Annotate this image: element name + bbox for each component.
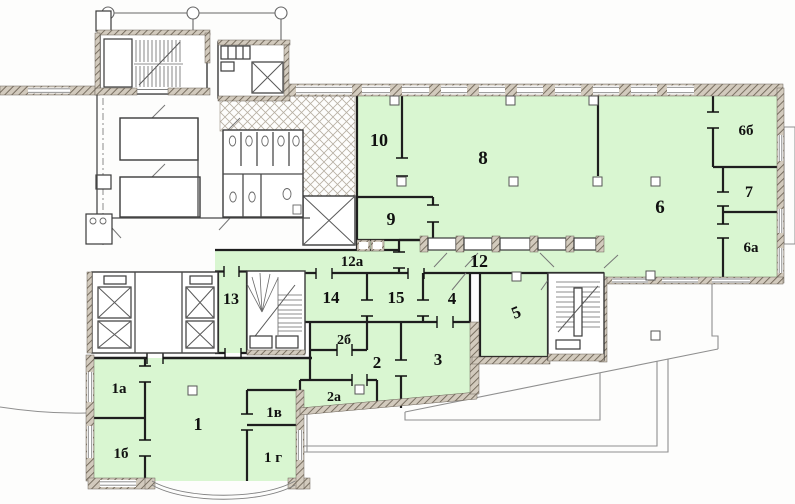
room-label-6: 6 <box>655 197 665 218</box>
room-label-12: 12 <box>470 251 488 271</box>
room-label-2b: 2б <box>337 333 351 348</box>
floor-plan: 10 8 9 6 6б 7 6а 12а 12 13 14 15 4 5 2б … <box>0 0 795 504</box>
room-label-7: 7 <box>745 184 753 201</box>
axis-bubble <box>187 7 199 19</box>
axis-bubble <box>275 7 287 19</box>
room-label-2a: 2а <box>327 390 341 405</box>
room-label-1b: 1б <box>114 446 129 462</box>
room-label-4: 4 <box>448 289 457 308</box>
room-label-2: 2 <box>373 353 382 372</box>
terrace-column <box>651 331 660 340</box>
room-label-6a: 6а <box>744 240 760 256</box>
room-label-14: 14 <box>323 288 341 307</box>
janitor-room <box>86 214 112 244</box>
toilets-block <box>223 130 303 217</box>
stairwell-1 <box>95 30 210 95</box>
room-label-6b: 6б <box>739 123 754 139</box>
room-label-10: 10 <box>370 130 388 150</box>
room-label-1: 1 <box>194 414 203 434</box>
room-label-13: 13 <box>223 291 239 308</box>
bottom-right-windows <box>612 278 750 283</box>
elevator-door <box>190 276 212 284</box>
room-label-12a: 12а <box>341 254 364 270</box>
room-untagged-a <box>120 118 198 160</box>
balcony-ledge <box>784 127 795 244</box>
room-label-8: 8 <box>478 148 488 169</box>
axis-marker-box <box>96 175 111 189</box>
stairwell-3 <box>247 271 305 355</box>
roof-hatch-box <box>96 11 111 31</box>
room-label-9: 9 <box>387 209 396 229</box>
room-untagged-b <box>120 177 200 217</box>
elevator-door <box>104 276 126 284</box>
stairwell-2 <box>548 273 604 361</box>
room-label-3: 3 <box>434 350 443 369</box>
room-label-1g: 1 г <box>264 450 282 466</box>
room-label-15: 15 <box>388 288 405 307</box>
vent-block <box>218 40 290 101</box>
floor-plan-svg: 10 8 9 6 6б 7 6а 12а 12 13 14 15 4 5 2б … <box>0 0 795 504</box>
elevator-block <box>87 272 218 353</box>
room-label-1v: 1в <box>266 405 282 421</box>
room-label-1a: 1а <box>112 381 128 397</box>
